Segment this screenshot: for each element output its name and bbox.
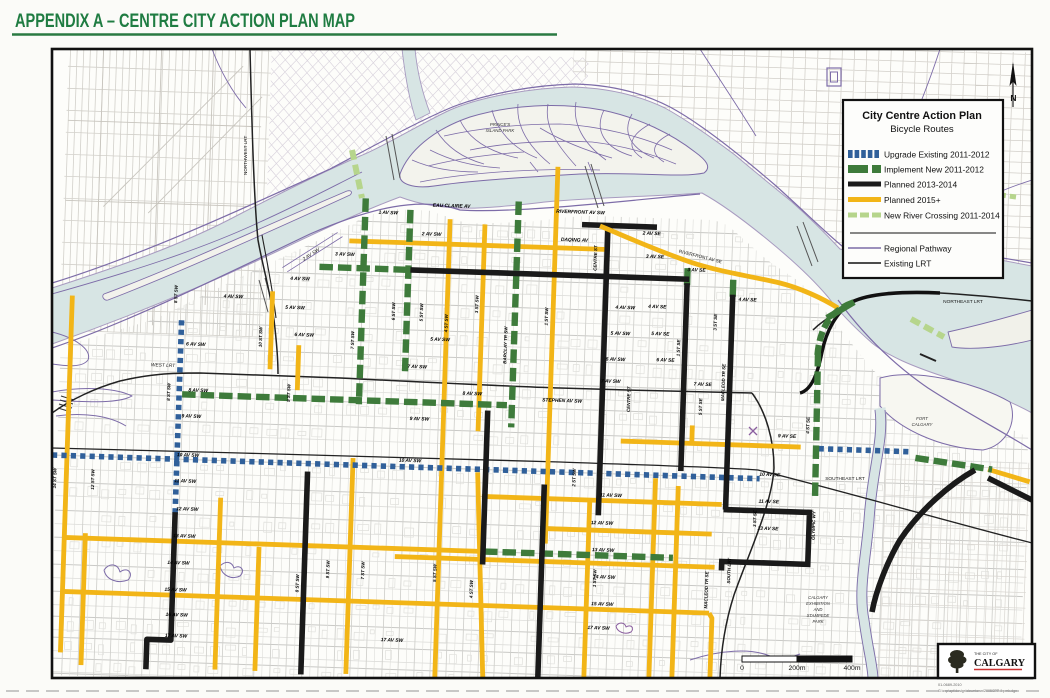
svg-text:3 AV SW: 3 AV SW [335,251,355,258]
svg-text:NORTHEAST LRT: NORTHEAST LRT [943,299,983,305]
svg-text:Planned 2015+: Planned 2015+ [884,195,941,205]
svg-text:14 AV SW: 14 AV SW [167,560,190,567]
svg-text:16 AV SW: 16 AV SW [165,612,188,619]
svg-text:CENTRE ST: CENTRE ST [592,244,598,271]
svg-text:5 AV SE: 5 AV SE [651,331,670,338]
svg-text:1 ST SW: 1 ST SW [592,568,598,587]
svg-text:2 ST SW: 2 ST SW [571,468,577,488]
svg-text:EXHIBITION: EXHIBITION [806,601,831,606]
svg-text:CALGARY: CALGARY [974,658,1026,669]
svg-text:8 AV SW: 8 AV SW [188,388,208,395]
svg-text:DAQING AV: DAQING AV [561,237,589,244]
svg-text:5 ST SE: 5 ST SE [698,397,704,415]
svg-text:CALGARY: CALGARY [912,422,934,427]
svg-text:5 ST SW: 5 ST SW [432,563,438,582]
svg-text:SOUTHEAST LRT: SOUTHEAST LRT [825,476,865,482]
svg-text:Regional Pathway: Regional Pathway [884,244,952,254]
svg-text:CENTRE ST: CENTRE ST [626,385,632,412]
svg-text:10 AV SE: 10 AV SE [759,472,781,479]
svg-text:Upgrade Existing 2011-2012: Upgrade Existing 2011-2012 [884,150,990,160]
svg-text:5 AV SW: 5 AV SW [430,337,450,344]
svg-text:WEST LRT: WEST LRT [151,362,176,369]
svg-text:AND: AND [813,607,823,612]
svg-text:4 AV SW: 4 AV SW [614,305,635,312]
svg-text:17 AV SW: 17 AV SW [165,633,188,640]
svg-text:4 AV SE: 4 AV SE [737,297,757,304]
svg-text:4 AV SE: 4 AV SE [647,304,667,311]
svg-text:3 AV SE: 3 AV SE [646,254,665,261]
svg-text:THE CITY OF: THE CITY OF [974,652,998,656]
svg-text:3 ST SE: 3 ST SE [713,313,719,331]
svg-text:1 ST SE: 1 ST SE [676,338,682,356]
svg-text:City Centre Action Plan: City Centre Action Plan [862,110,982,122]
svg-text:10 ST SW: 10 ST SW [258,326,264,347]
svg-text:10 AV SW: 10 AV SW [177,452,200,459]
svg-text:Implement New 2011-2012: Implement New 2011-2012 [884,165,984,175]
svg-text:New River Crossing 2011-2014: New River Crossing 2011-2014 [884,211,1000,221]
svg-text:8 ST SW: 8 ST SW [295,573,301,592]
svg-text:7 AV SE: 7 AV SE [694,381,713,388]
svg-text:CALGARY: CALGARY [808,595,829,600]
svg-text:6 AV SE: 6 AV SE [656,357,675,364]
svg-text:7 AV SW: 7 AV SW [601,378,621,385]
svg-text:12 ST SW: 12 ST SW [90,468,96,489]
svg-text:5 AV SW: 5 AV SW [285,305,305,312]
svg-text:9 AV SW: 9 AV SW [181,413,201,420]
svg-text:11 AV SW: 11 AV SW [600,492,622,499]
svg-text:2 AV SW: 2 AV SW [421,231,442,238]
svg-text:8 ST SW: 8 ST SW [166,382,172,401]
svg-text:10 AV SW: 10 AV SW [399,458,422,465]
svg-text:400m: 400m [843,665,860,672]
svg-text:7 ST SW: 7 ST SW [350,330,356,349]
svg-text:Bicycle Routes: Bicycle Routes [890,124,954,135]
svg-text:6 AV SW: 6 AV SW [294,332,314,339]
svg-text:17 AV SW: 17 AV SW [587,625,610,632]
svg-text:1 ST SW: 1 ST SW [544,307,550,326]
svg-text:2 AV SE: 2 AV SE [642,231,662,238]
svg-text:6 AV SW: 6 AV SW [186,341,206,348]
svg-text:9 AV SE: 9 AV SE [778,433,797,440]
svg-text:15 AV SW: 15 AV SW [591,601,614,608]
svg-text:4 AV SW: 4 AV SW [223,294,244,301]
svg-text:4 AV SW: 4 AV SW [289,276,310,283]
svg-text:0: 0 [740,665,744,672]
svg-text:5 AV SW: 5 AV SW [610,331,630,338]
svg-text:11 AV SW: 11 AV SW [174,478,196,485]
svg-text:17 AV SW: 17 AV SW [381,637,404,644]
svg-text:Existing LRT: Existing LRT [884,259,931,269]
svg-text:200m: 200m [788,665,805,672]
svg-text:8 ST SW: 8 ST SW [173,284,179,303]
svg-text:9 ST SW: 9 ST SW [286,383,292,402]
svg-text:9 ST SW: 9 ST SW [325,559,331,578]
svg-text:STAMPEDE: STAMPEDE [807,613,830,618]
svg-text:4 ST SW: 4 ST SW [468,579,474,599]
svg-text:13 AV SW: 13 AV SW [592,547,615,554]
svg-text:13 AV SE: 13 AV SE [757,526,779,533]
svg-text:9 AV SW: 9 AV SW [410,416,430,423]
svg-text:12 AV SW: 12 AV SW [176,506,199,513]
svg-text:APPENDIX A – CENTRE CITY ACTIO: APPENDIX A – CENTRE CITY ACTION PLAN MAP [15,11,355,32]
svg-text:NORTHWEST LRT: NORTHWEST LRT [243,135,248,175]
svg-text:15 AV SW: 15 AV SW [164,587,187,594]
svg-text:7 ST SW: 7 ST SW [360,561,366,580]
svg-text:5 ST SW: 5 ST SW [419,302,425,321]
svg-text:ISLAND PARK: ISLAND PARK [486,128,516,133]
svg-text:3 ST SW: 3 ST SW [474,294,480,313]
svg-text:6 AV SW: 6 AV SW [606,356,626,363]
svg-text:FORT: FORT [916,416,928,421]
svg-text:6 ST SW: 6 ST SW [391,302,397,321]
svg-text:PRINCE'S: PRINCE'S [490,122,510,127]
svg-text:1 AV SW: 1 AV SW [378,210,398,217]
svg-text:3 ST SE: 3 ST SE [752,509,758,527]
svg-text:11 AV SE: 11 AV SE [758,499,779,506]
svg-text:4 ST SW: 4 ST SW [443,313,449,333]
svg-text:8 AV SW: 8 AV SW [462,391,482,398]
svg-text:4 ST SE: 4 ST SE [805,416,811,435]
svg-text:7 AV SW: 7 AV SW [407,364,427,371]
svg-text:3 AV SE: 3 AV SE [687,267,706,274]
svg-text:01-0689-2010: 01-0689-2010 [938,683,962,687]
svg-text:13 AV SW: 13 AV SW [173,533,196,540]
svg-text:Planned 2013-2014: Planned 2013-2014 [884,180,957,190]
svg-text:PARK: PARK [812,619,823,624]
svg-text:SOUTH LRT: SOUTH LRT [726,557,732,584]
svg-text:12 AV SW: 12 AV SW [591,520,614,527]
svg-text:OLYMPIC WY: OLYMPIC WY [811,510,817,540]
